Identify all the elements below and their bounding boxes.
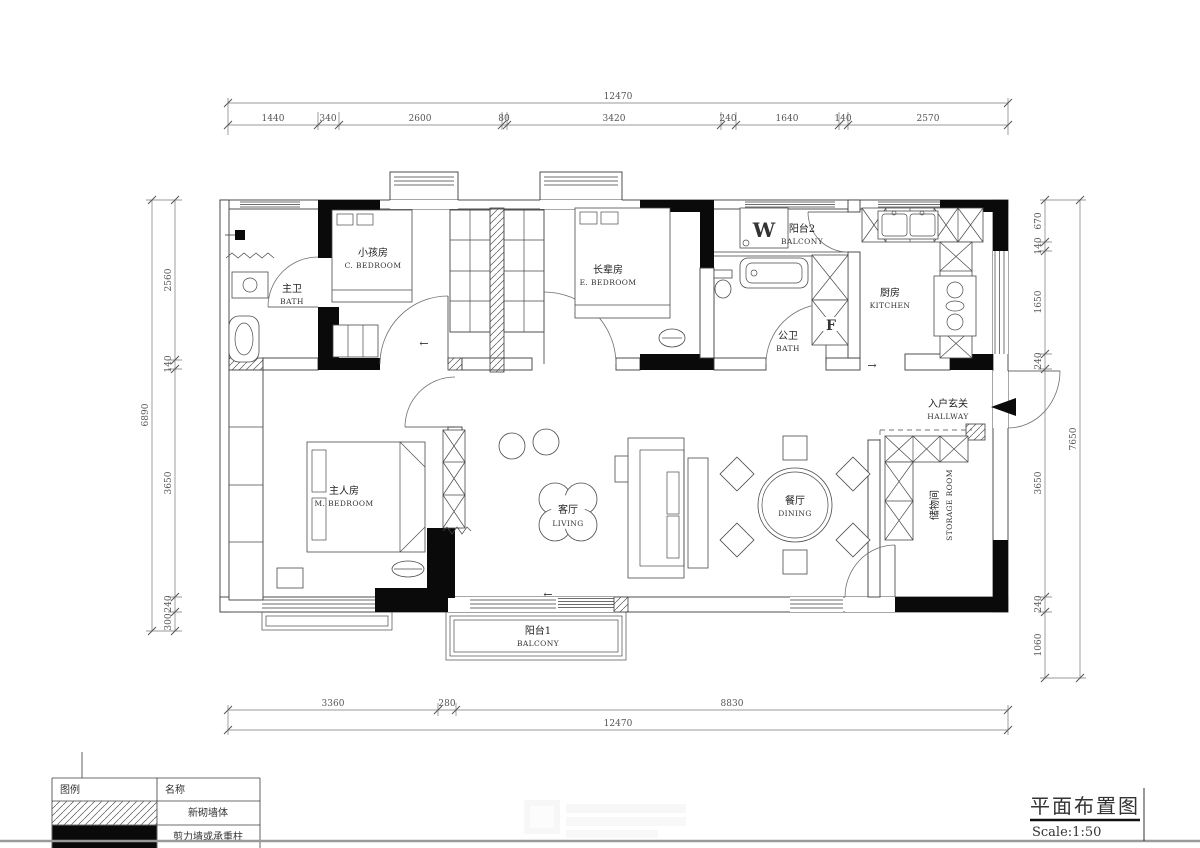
- legend-col-symbol: 图例: [60, 783, 80, 796]
- label-balcony1-en: BALCONY: [517, 639, 560, 648]
- dim-bottom-total: 12470: [604, 719, 633, 729]
- dim-top-total: 12470: [604, 92, 633, 102]
- label-c-bedroom-zh: 小孩房: [358, 246, 388, 259]
- legend-swatch-shear-wall: [53, 826, 157, 848]
- kitchen-counters: [862, 208, 983, 358]
- dim-bottom-2: 8830: [721, 699, 744, 709]
- label-kitchen-zh: 厨房: [880, 286, 900, 299]
- dim-top-4: 3420: [603, 114, 626, 124]
- living-furniture: [499, 429, 708, 578]
- dim-left-1: 140: [164, 355, 174, 372]
- label-balcony1-zh: 阳台1: [525, 624, 551, 637]
- drawing-title: 平面布置图: [1030, 794, 1140, 818]
- label-dining-en: DINING: [778, 509, 811, 518]
- passage-arrow-right: →: [867, 359, 876, 372]
- child-bedroom-furniture: [332, 210, 412, 357]
- dimensions-left: 6890 2560 140 3650 240 300: [141, 196, 182, 635]
- dim-right-0: 670: [1034, 212, 1044, 229]
- label-balcony2-en: BALCONY: [781, 237, 824, 246]
- passage-arrow-left-2: ←: [543, 588, 552, 601]
- dim-top-2: 2600: [409, 114, 432, 124]
- legend-swatch-masonry: [53, 802, 157, 825]
- dim-bottom-1: 280: [438, 699, 455, 709]
- label-m-bath-zh: 主卫: [282, 283, 302, 295]
- watermark: [524, 800, 686, 838]
- label-e-bedroom-zh: 长辈房: [593, 263, 623, 276]
- label-hallway-en: HALLWAY: [927, 412, 969, 421]
- dim-right-3: 240: [1034, 352, 1044, 369]
- label-hallway-zh: 入户玄关: [928, 397, 968, 410]
- label-storage-en: STORAGE ROOM: [945, 469, 954, 541]
- label-living-zh: 客厅: [558, 503, 578, 516]
- label-storage-zh: 储物间: [928, 490, 941, 520]
- dimensions-bottom: 3360 280 8830 12470: [224, 699, 1012, 735]
- dim-top-3: 80: [498, 114, 510, 124]
- dim-left-4: 300: [164, 613, 174, 630]
- storage-cabinets: [880, 430, 972, 546]
- dim-left-total: 6890: [141, 403, 151, 426]
- dimensions-right: 7650 670 140 1650 240 3650 240 1060: [1034, 196, 1086, 682]
- dim-right-1: 140: [1034, 237, 1044, 254]
- dim-right-4: 3650: [1034, 471, 1044, 494]
- dim-left-0: 2560: [164, 268, 174, 291]
- dim-bottom-0: 3360: [322, 699, 345, 709]
- dim-left-3: 240: [164, 595, 174, 612]
- dim-top-6: 1640: [776, 114, 799, 124]
- passage-arrow-left-1: ←: [419, 337, 428, 350]
- dim-top-8: 2570: [917, 114, 940, 124]
- dim-right-5: 240: [1034, 595, 1044, 612]
- label-m-bath-en: BATH: [280, 297, 304, 306]
- dim-right-2: 1650: [1034, 290, 1044, 313]
- dim-right-6: 1060: [1034, 633, 1044, 656]
- label-m-bedroom-en: M. BEDROOM: [314, 499, 373, 508]
- dim-right-total: 7650: [1069, 427, 1079, 450]
- dim-top-0: 1440: [262, 114, 285, 124]
- label-living-en: LIVING: [552, 519, 583, 528]
- label-c-bedroom-en: C. BEDROOM: [345, 261, 402, 270]
- label-balcony2-zh: 阳台2: [789, 222, 815, 235]
- washer-label: W: [752, 218, 776, 242]
- dim-left-2: 3650: [164, 471, 174, 494]
- label-dining-zh: 餐厅: [785, 494, 805, 507]
- label-p-bath-zh: 公卫: [778, 331, 798, 342]
- master-bath-fixtures: [226, 253, 274, 362]
- floor-plan-drawing: 小孩房 C. BEDROOM 长辈房 E. BEDROOM 主人房 M. BED…: [0, 0, 1200, 848]
- legend-col-name: 名称: [165, 783, 185, 796]
- dimensions-top: 12470 1440 340 2600 80 3420 240 1640 140…: [224, 92, 1012, 135]
- master-bedroom-furniture: [277, 442, 425, 588]
- label-kitchen-en: KITCHEN: [870, 301, 911, 310]
- floor-plan-sheet: 小孩房 C. BEDROOM 长辈房 E. BEDROOM 主人房 M. BED…: [0, 0, 1200, 848]
- label-m-bedroom-zh: 主人房: [329, 484, 359, 497]
- drawing-scale: Scale:1:50: [1032, 825, 1101, 840]
- dim-top-7: 140: [834, 114, 851, 124]
- flue-label: F: [826, 318, 836, 334]
- legend-name-masonry: 新砌墙体: [188, 806, 228, 819]
- legend-table: 图例 名称 新砌墙体 剪力墙或承重柱: [52, 752, 260, 848]
- label-e-bedroom-en: E. BEDROOM: [580, 278, 637, 287]
- dim-top-1: 340: [319, 114, 336, 124]
- label-p-bath-en: BATH: [776, 344, 800, 353]
- dim-top-5: 240: [719, 114, 736, 124]
